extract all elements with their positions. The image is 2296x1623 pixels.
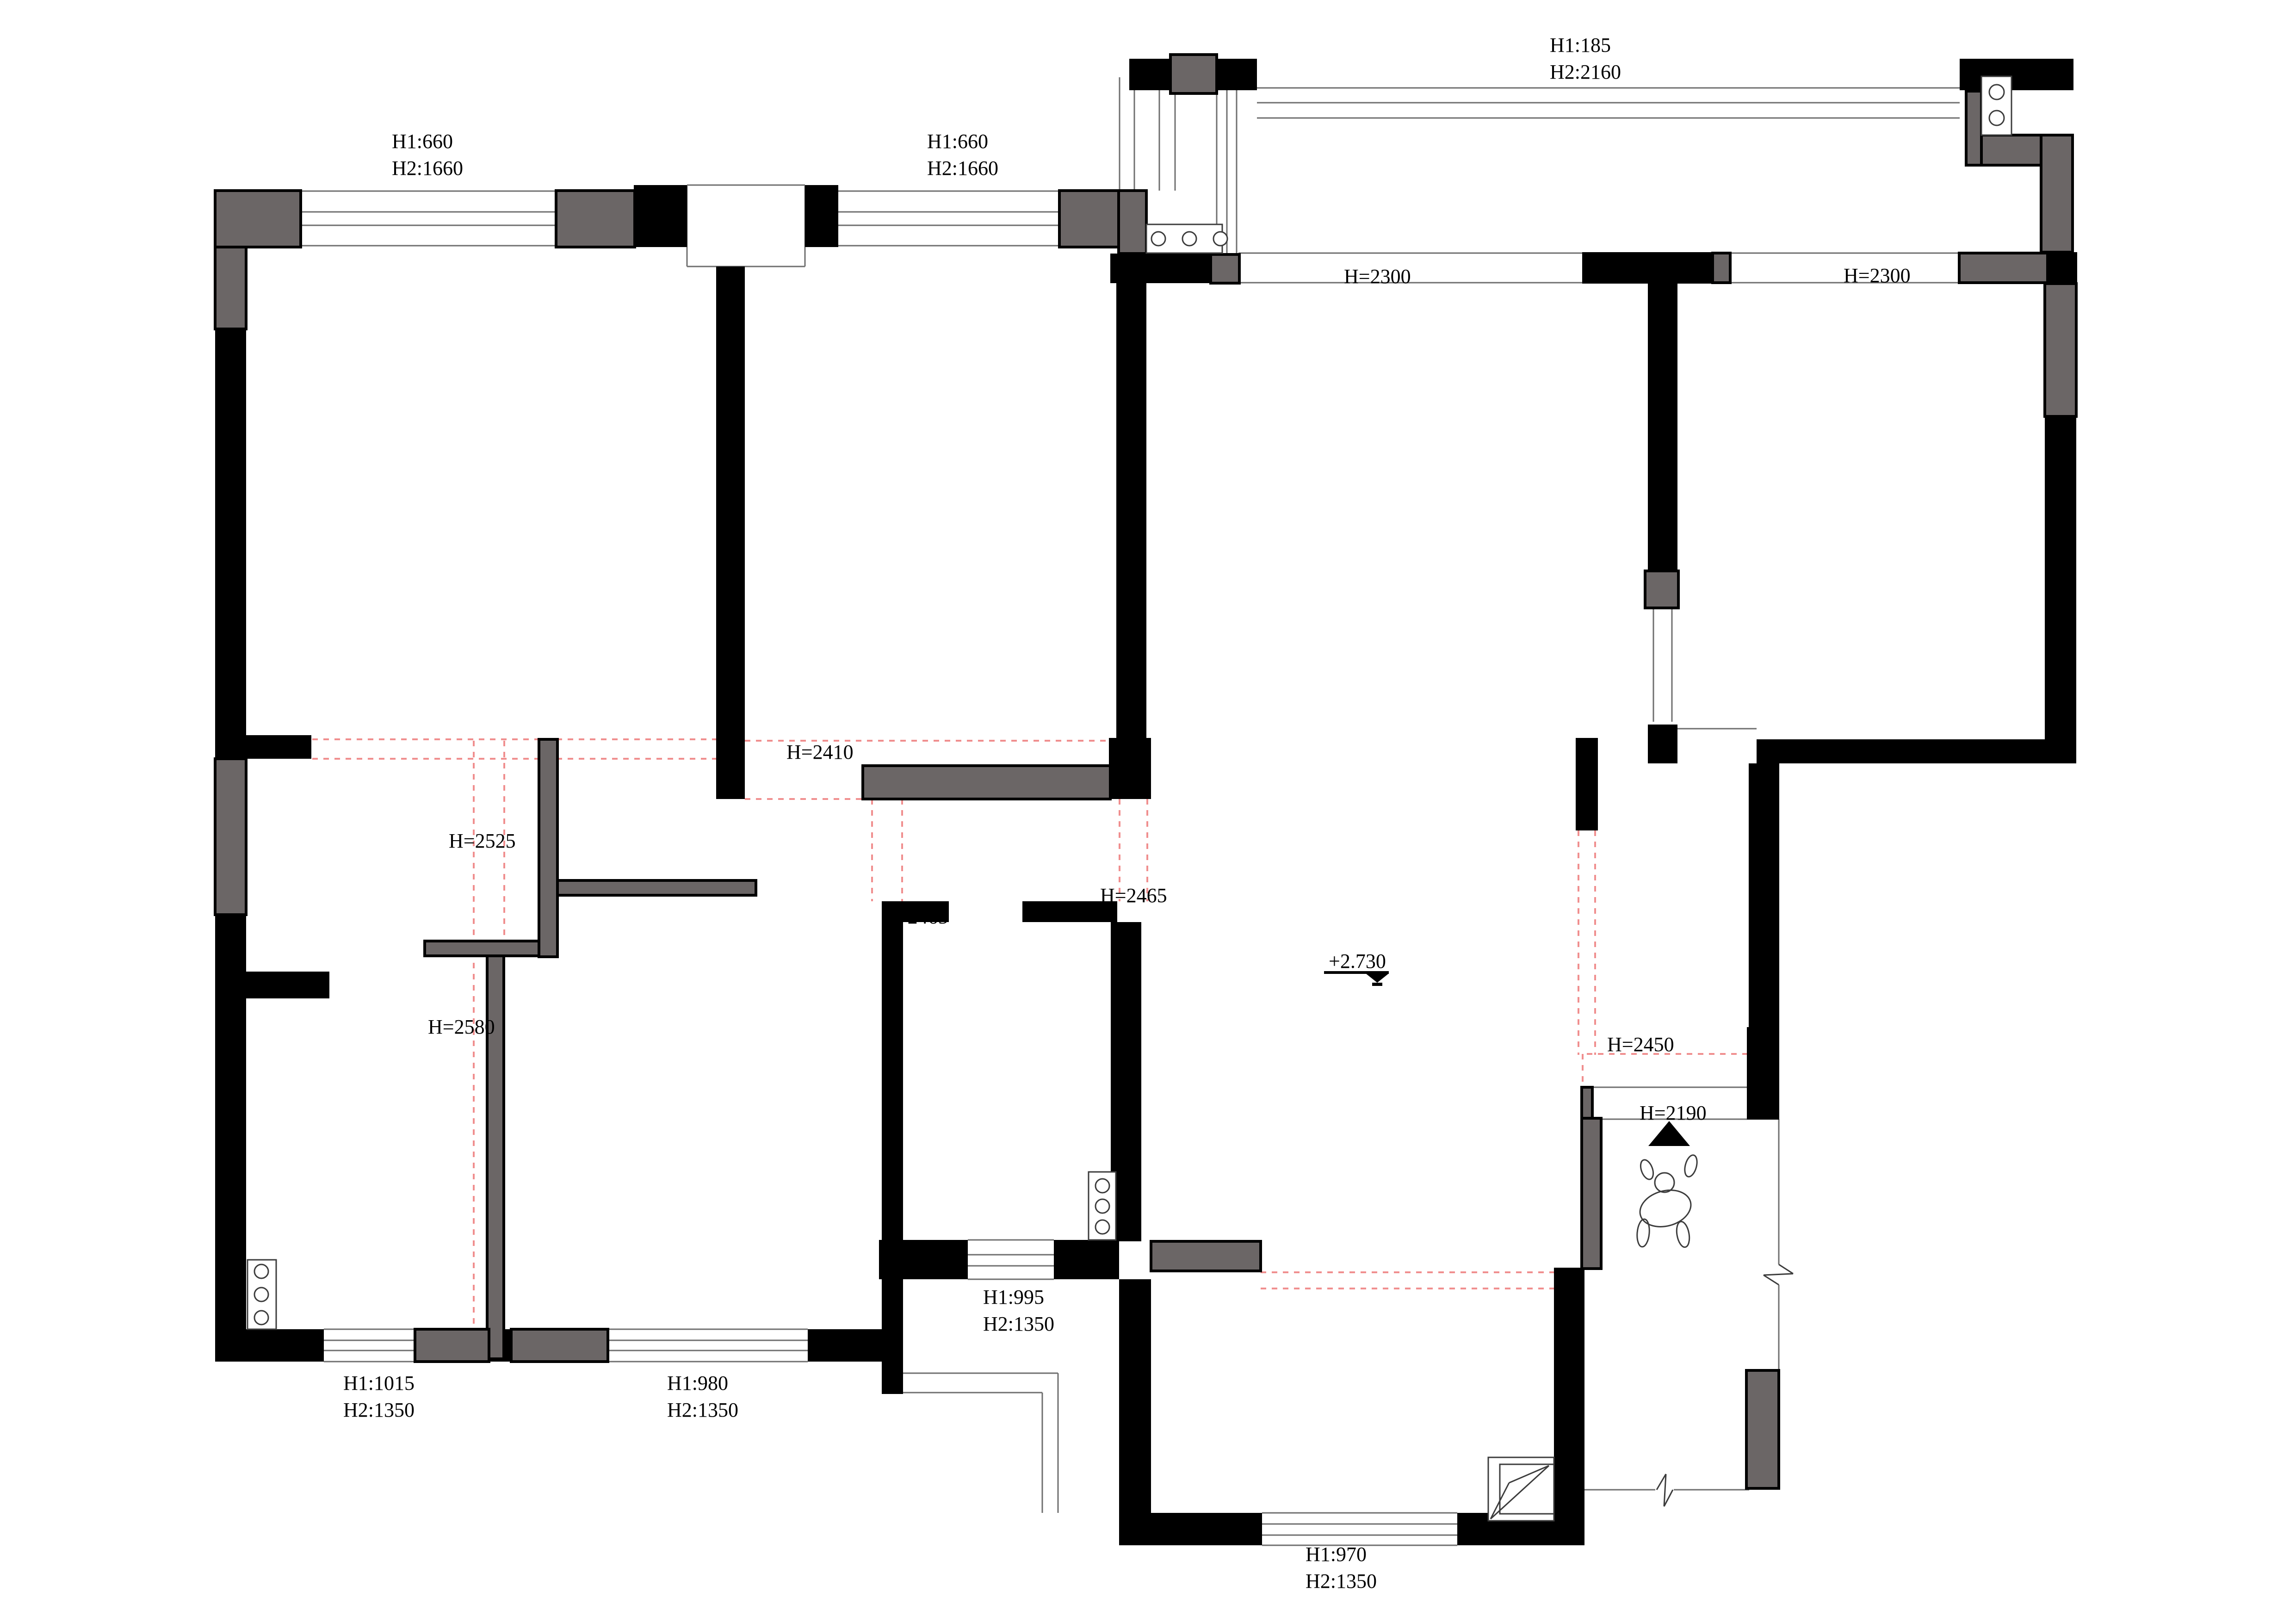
floor-plan-drawing: H1:660H2:1660H1:660H2:1660H1:185H2:2160H… (0, 0, 2296, 1623)
wall-segment (1054, 1240, 1119, 1279)
wall-segment (1554, 1268, 1584, 1457)
wall-segment-new (1059, 191, 1120, 247)
wall-segment (1648, 284, 1677, 571)
dimension-label: H=2465 (1100, 884, 1167, 907)
wall-segment (215, 1329, 324, 1362)
wall-segment (1747, 1027, 1779, 1120)
wall-segment (716, 266, 745, 799)
wall-segment (1554, 1457, 1584, 1545)
wall-segment-new (1582, 1118, 1601, 1269)
dimension-label: H2:1350 (983, 1313, 1054, 1335)
wall-segment-new (1959, 253, 2048, 283)
fixture-circle (1989, 111, 2004, 125)
fixture-circle (1989, 85, 2004, 99)
wall-segment-new (539, 739, 557, 957)
wall-segment-new (1713, 253, 1730, 283)
wall-segment (1582, 252, 1730, 284)
dimension-label: H1:660 (392, 130, 453, 153)
floor-plan-page: H1:660H2:1660H1:660H2:1660H1:185H2:2160H… (0, 0, 2296, 1623)
wall-segment-new (1119, 191, 1146, 254)
dimension-label: H1:660 (927, 130, 988, 153)
wall-segment (805, 185, 838, 247)
wall-segment-new (1151, 1241, 1261, 1271)
dimension-label: H1:980 (667, 1372, 728, 1394)
wall-segment (1960, 59, 2073, 90)
dimension-label: H2:1350 (343, 1399, 415, 1421)
dimension-label: H2:1350 (667, 1399, 738, 1421)
fixture-circle (1182, 232, 1196, 246)
wall-segment-new (215, 247, 246, 329)
fixture-box (1500, 1464, 1554, 1514)
wall-segment-new (215, 191, 301, 247)
wall-segment-new (556, 191, 635, 247)
wall-segment (246, 972, 329, 998)
wall-segment (1648, 725, 1677, 763)
fixture-circle (254, 1264, 268, 1278)
dimension-label: H=2450 (1607, 1033, 1674, 1056)
level-label: +2.730 (1329, 950, 1386, 973)
dimension-label: H=2525 (449, 830, 516, 852)
dimension-label: H=2300 (1844, 264, 1911, 287)
wall-segment (1576, 738, 1598, 830)
wall-segment (879, 1240, 968, 1279)
wall-segment-new (1211, 254, 1239, 283)
wall-segment (1116, 283, 1146, 799)
wall-segment-new (2041, 135, 2073, 252)
dimension-label: H1:185 (1550, 34, 1611, 56)
fixture-circle (1095, 1179, 1109, 1193)
wall-segment (2048, 252, 2077, 285)
fixture-circle (1095, 1199, 1109, 1213)
wall-segment (2045, 416, 2076, 740)
wall-segment (215, 328, 246, 759)
wall-segment-new (863, 766, 1110, 799)
dimension-label: H=2190 (1640, 1102, 1707, 1124)
fixture-circle (254, 1288, 268, 1301)
dimension-label: H2:1350 (1306, 1570, 1377, 1592)
wall-segment-new (1966, 91, 1981, 165)
dimension-label: H2:1660 (392, 157, 463, 180)
wall-segment-new (215, 759, 246, 915)
dimension-label: H1:1015 (343, 1372, 415, 1394)
wall-segment-new (556, 880, 756, 895)
dimension-label: H=2580 (428, 1016, 495, 1038)
wall-segment-new (2045, 284, 2076, 416)
wall-segment (1757, 739, 2076, 763)
wall-segment-new (415, 1329, 489, 1362)
wall-segment-new (1645, 571, 1678, 608)
wall-segment-new (1746, 1370, 1779, 1488)
fixture-circle (1151, 232, 1165, 246)
fixture-circle (1095, 1220, 1109, 1234)
wall-segment (1109, 738, 1151, 799)
dimension-label: H=2410 (786, 741, 854, 763)
wall-segment (220, 735, 311, 759)
wall-segment (634, 185, 687, 247)
wall-segment (1217, 59, 1257, 90)
dimension-label: H2:1660 (927, 157, 998, 180)
wall-segment (215, 915, 246, 1358)
wall-segment (1119, 1279, 1151, 1521)
wall-segment (882, 922, 903, 1394)
dimension-label: H=2465 (881, 905, 948, 928)
fixture-circle (1213, 232, 1227, 246)
fixture-circle (254, 1311, 268, 1325)
wall-segment (1129, 59, 1171, 90)
wall-segment (1119, 1513, 1262, 1545)
wall-segment-new (425, 941, 557, 956)
dimension-label: H1:970 (1306, 1543, 1367, 1566)
level-marker (1372, 983, 1382, 986)
wall-segment-new (1582, 1087, 1592, 1118)
dimension-label: H1:995 (983, 1286, 1044, 1308)
dimension-label: H=2300 (1344, 265, 1411, 288)
dimension-label: H2:2160 (1550, 61, 1621, 83)
wall-segment-new (1170, 55, 1217, 93)
wall-segment-new (511, 1329, 608, 1362)
